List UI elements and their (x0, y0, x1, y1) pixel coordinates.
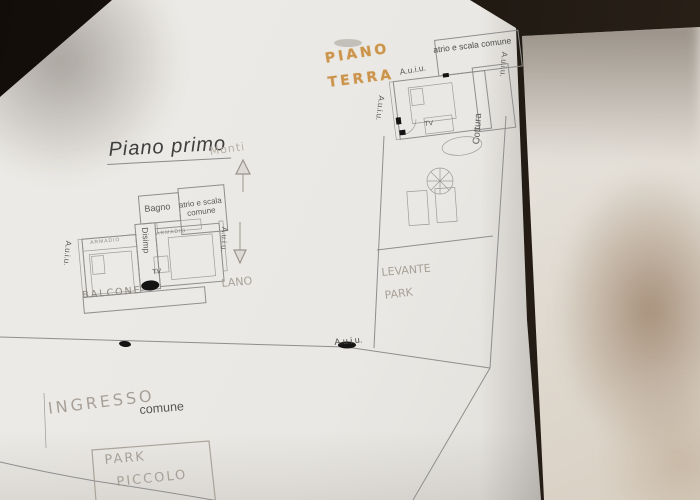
ink-scribble-corridor (141, 280, 160, 292)
photo-of-floor-plan-sheet: Piano primo Monti PIANO TERRA atrio e sc… (0, 0, 700, 500)
paper-crease-line (44, 393, 46, 448)
site-left-line (374, 136, 384, 348)
bed-right (168, 234, 215, 280)
ink-mark-1 (396, 117, 402, 125)
ink-mark-3 (443, 73, 449, 78)
ink-mark-2 (399, 130, 406, 136)
autu-label-first-left: A.u.i.u. (61, 240, 72, 266)
site-divider-line (377, 236, 493, 250)
lano-pencil-note: LANO (221, 275, 253, 290)
parasol-top-view (427, 168, 453, 194)
disimp-label: Disimp (140, 227, 151, 254)
pillow-ground (410, 88, 424, 105)
autu-label-ground-right: A.u.i.u. (498, 51, 508, 76)
lounger-1 (407, 190, 429, 225)
site-boundary (0, 116, 506, 500)
ink-blob-boundary-left (119, 340, 132, 347)
tv-label-first: TV (152, 268, 162, 276)
cottura-label: Cottura (472, 113, 484, 145)
arrow-down-head-icon (234, 250, 246, 263)
site-bottom-boundary (0, 337, 490, 368)
arrow-up-head-icon (236, 160, 250, 174)
autu-label-first-right: A.u.i.u. (219, 227, 228, 252)
direction-arrows (234, 160, 250, 263)
tv-label-ground: TV (424, 120, 434, 128)
autu-label-ground-left: A.u.i.u. (373, 95, 385, 121)
pillow-left (91, 255, 105, 274)
site-right-line (413, 116, 506, 500)
